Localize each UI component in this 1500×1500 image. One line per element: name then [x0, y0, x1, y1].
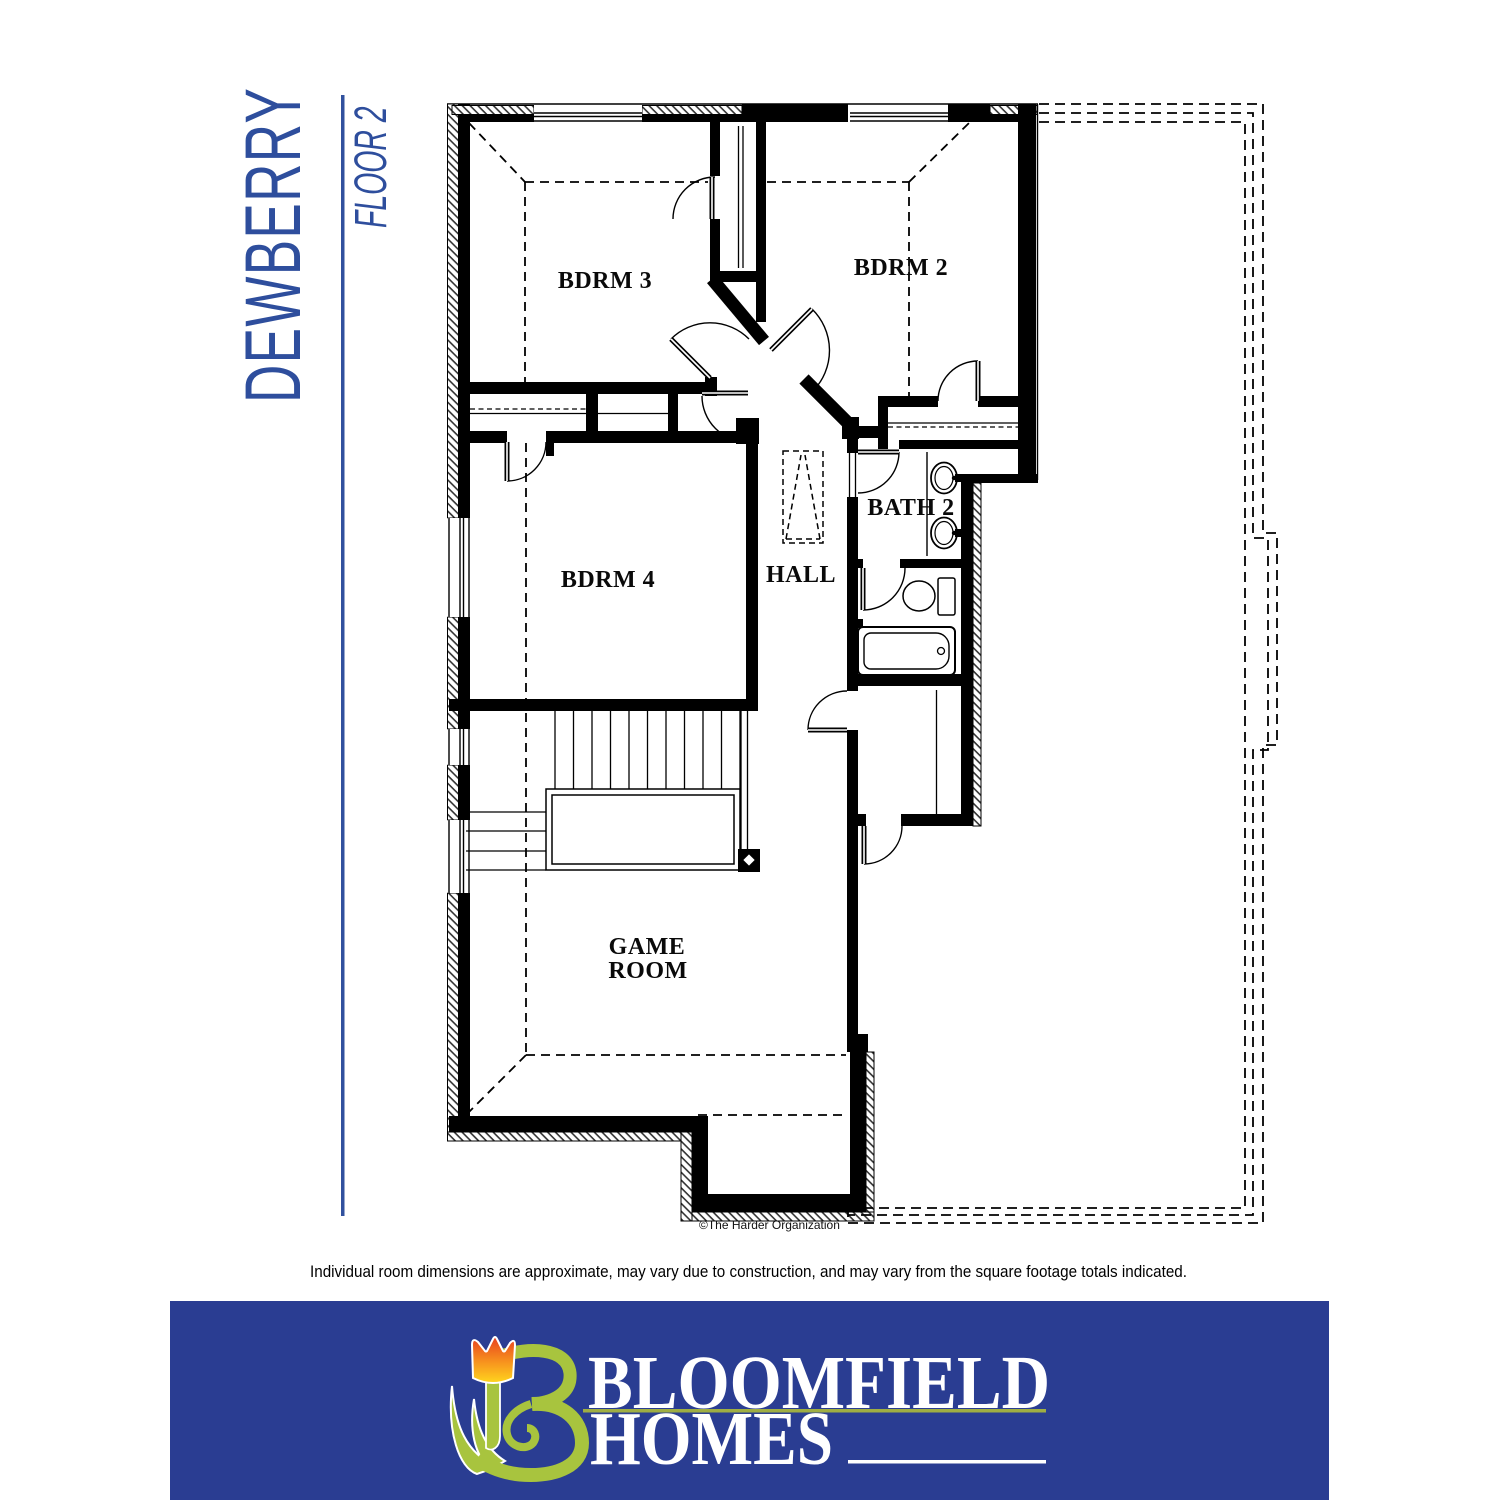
svg-text:HALL: HALL: [766, 562, 836, 588]
svg-text:BATH 2: BATH 2: [867, 495, 954, 521]
svg-text:ROOM: ROOM: [608, 958, 687, 984]
svg-text:©The Harder Organization: ©The Harder Organization: [699, 1218, 840, 1232]
svg-text:HOMES: HOMES: [590, 1397, 833, 1481]
svg-text:GAME: GAME: [609, 934, 686, 960]
svg-text:DEWBERRY: DEWBERRY: [228, 87, 317, 403]
svg-text:FLOOR 2: FLOOR 2: [345, 106, 396, 228]
svg-text:Individual room dimensions are: Individual room dimensions are approxima…: [310, 1263, 1187, 1281]
svg-text:BDRM 2: BDRM 2: [854, 255, 948, 281]
svg-text:BDRM 4: BDRM 4: [561, 567, 655, 593]
svg-text:BDRM 3: BDRM 3: [558, 268, 652, 294]
